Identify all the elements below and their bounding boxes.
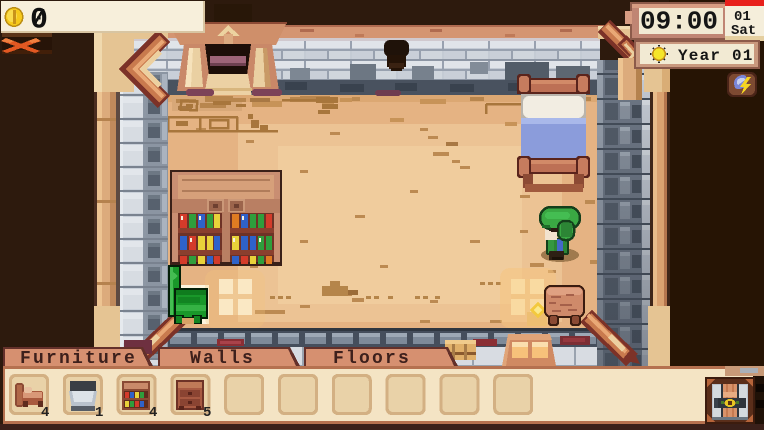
svg-text:Sat: Sat (731, 23, 756, 39)
svg-text:5: 5 (203, 405, 211, 421)
svg-text:1: 1 (95, 405, 103, 421)
svg-text:Year 01: Year 01 (678, 47, 754, 65)
svg-text:0: 0 (30, 4, 48, 38)
svg-text:09:00: 09:00 (640, 7, 718, 37)
svg-text:4: 4 (41, 405, 49, 421)
svg-text:4: 4 (149, 405, 157, 421)
